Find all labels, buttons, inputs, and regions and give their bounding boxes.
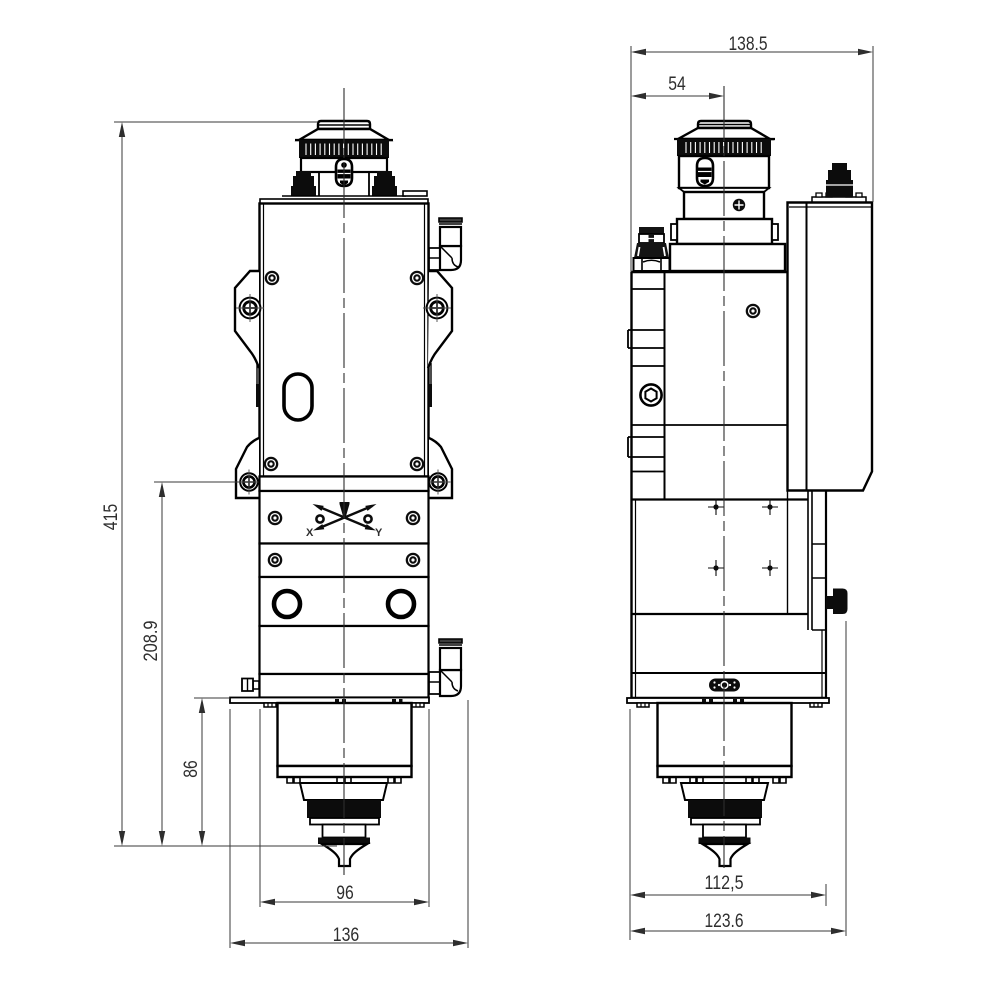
- svg-text:123.6: 123.6: [705, 911, 744, 932]
- svg-text:86: 86: [181, 760, 202, 778]
- svg-text:96: 96: [336, 883, 354, 904]
- svg-text:208.9: 208.9: [141, 621, 162, 662]
- svg-text:415: 415: [101, 504, 122, 531]
- svg-text:112,5: 112,5: [705, 873, 744, 894]
- svg-text:54: 54: [668, 74, 686, 95]
- svg-text:138.5: 138.5: [729, 34, 768, 55]
- svg-text:X: X: [306, 527, 314, 539]
- svg-text:136: 136: [333, 925, 360, 946]
- svg-text:Y: Y: [375, 527, 383, 539]
